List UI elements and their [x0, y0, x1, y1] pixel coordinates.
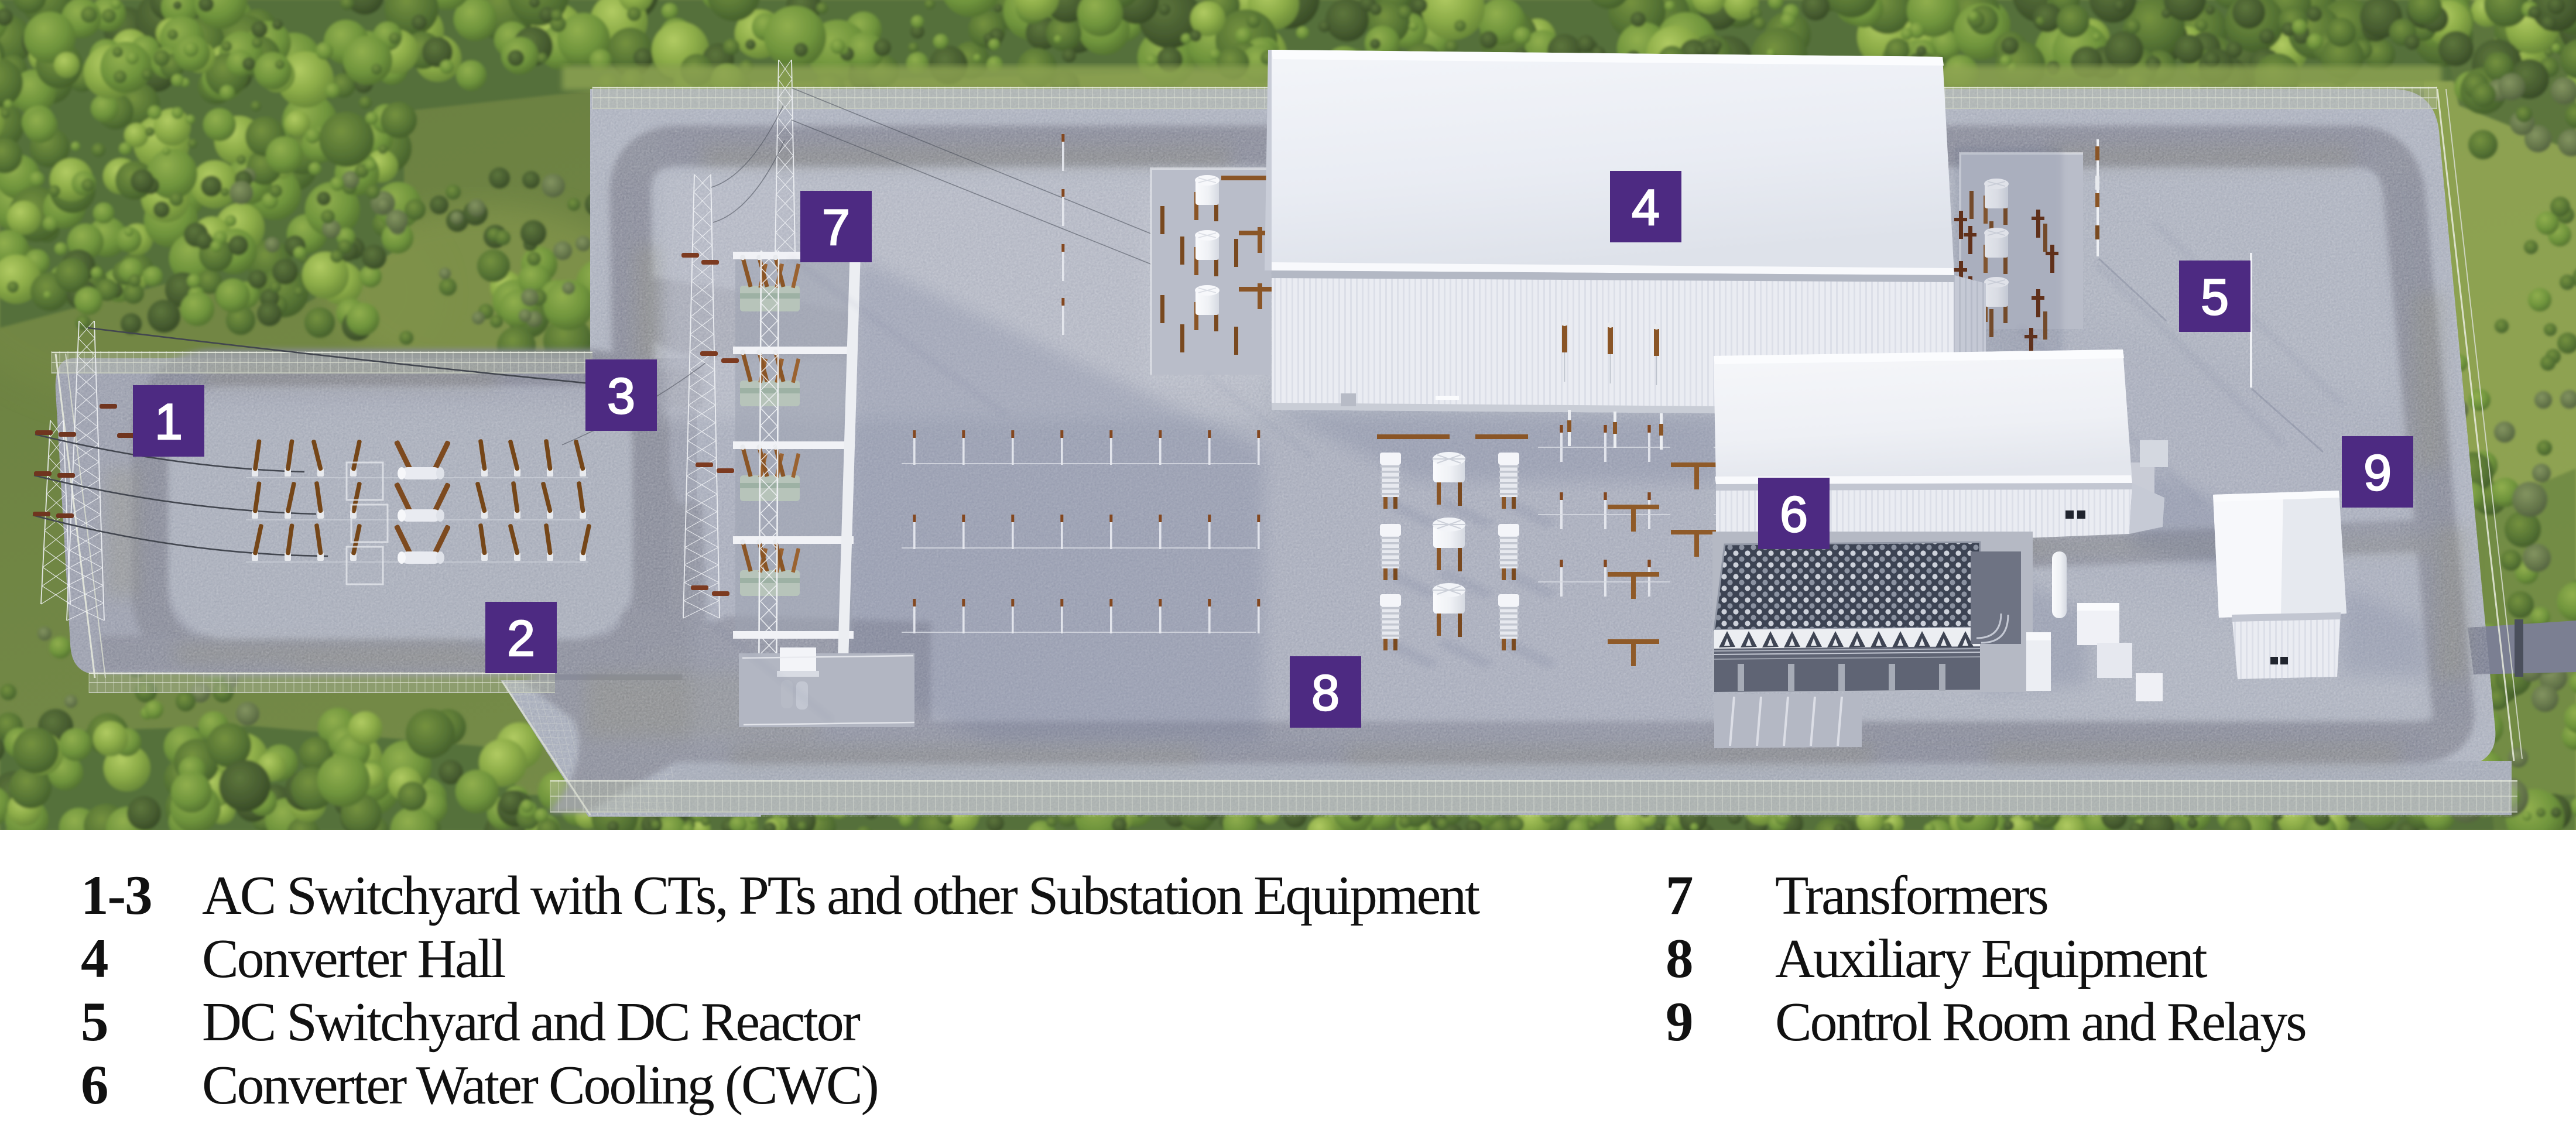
svg-text:7: 7 [822, 200, 850, 256]
svg-text:1: 1 [155, 394, 183, 450]
svg-text:Converter Hall: Converter Hall [202, 928, 505, 989]
svg-text:AC Switchyard with CTs, PTs an: AC Switchyard with CTs, PTs and other Su… [202, 865, 1480, 926]
svg-text:7: 7 [1666, 864, 1693, 926]
svg-text:DC Switchyard and DC Reactor: DC Switchyard and DC Reactor [202, 992, 861, 1053]
svg-text:Control Room and Relays: Control Room and Relays [1775, 992, 2306, 1053]
svg-text:9: 9 [2363, 445, 2392, 501]
svg-text:4: 4 [81, 927, 108, 989]
svg-text:Auxiliary Equipment: Auxiliary Equipment [1775, 928, 2208, 989]
svg-text:4: 4 [1632, 180, 1660, 236]
svg-text:2: 2 [507, 611, 535, 667]
svg-text:1-3: 1-3 [81, 864, 152, 926]
svg-text:5: 5 [2201, 269, 2229, 325]
svg-text:6: 6 [1780, 486, 1808, 543]
svg-text:3: 3 [607, 368, 635, 424]
svg-text:8: 8 [1666, 927, 1693, 989]
svg-text:5: 5 [81, 991, 108, 1053]
svg-text:6: 6 [81, 1054, 108, 1116]
svg-text:Transformers: Transformers [1775, 865, 2047, 926]
svg-text:Converter Water Cooling (CWC): Converter Water Cooling (CWC) [202, 1055, 878, 1116]
svg-text:8: 8 [1311, 665, 1340, 721]
svg-text:9: 9 [1666, 991, 1693, 1053]
